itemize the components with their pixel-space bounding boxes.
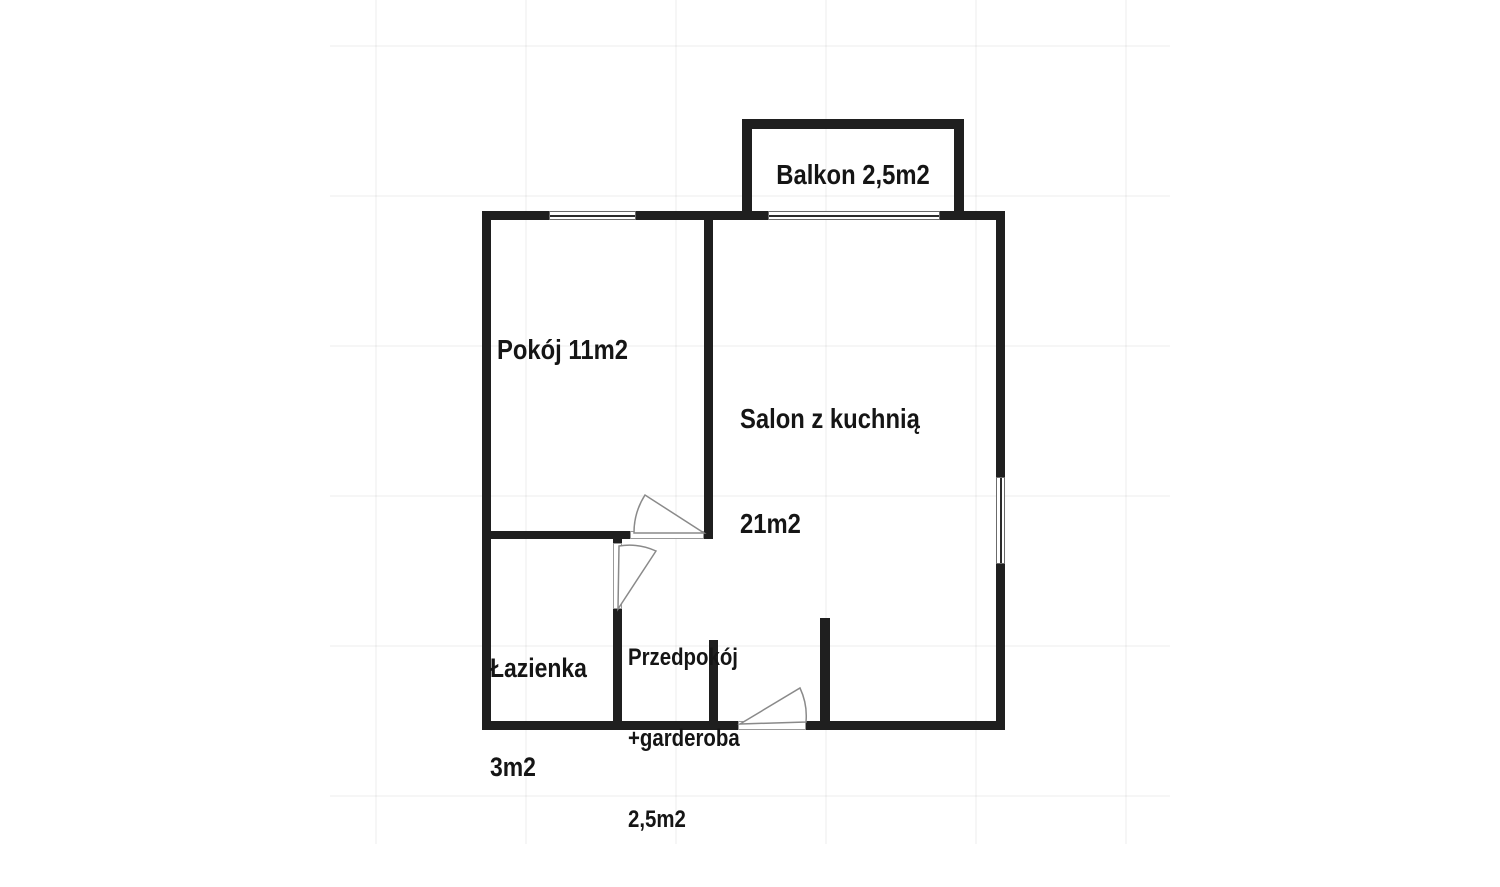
room-label-przedpokoj: Przedpokój +garderoba 2,5m2 [628,590,740,887]
room-label-lazienka-line1: Łazienka [490,652,587,685]
wall-divider-pokoj-salon [704,220,713,539]
room-label-salon-line2: 21m2 [740,506,920,541]
door-opening-entry [738,721,806,730]
room-label-balkon: Balkon 2,5m2 [759,157,948,192]
wall-outer-bottom-segment-right [806,721,1004,730]
door-opening-pokoj [630,531,704,539]
room-label-przedpokoj-line3: 2,5m2 [628,806,740,833]
window-pane-line [1000,478,1002,563]
room-label-lazienka: Łazienka 3m2 [490,586,587,850]
room-label-pokoj: Pokój 11m2 [497,332,628,367]
window-balcony-door [768,211,940,220]
room-label-przedpokoj-line1: Przedpokój [628,644,740,671]
wall-hall-right-stub [820,618,830,730]
wall-balcony-top [742,119,964,129]
wall-balcony-left [742,119,752,211]
window-pane-line [769,215,939,217]
room-label-salon: Salon z kuchnią 21m2 [740,331,920,611]
wall-outer-top-segment-left [482,211,549,220]
wall-outer-right-segment-bottom [996,564,1005,730]
window-salon-right [996,477,1005,564]
window-pane-line [550,215,635,217]
wall-outer-top-segment-middle [636,211,768,220]
wall-pokoj-bottom [482,531,630,539]
wall-outer-right-segment-top [996,211,1005,477]
door-opening-lazienka [613,543,622,609]
window-pokoj-top [549,211,636,220]
room-label-salon-line1: Salon z kuchnią [740,401,920,436]
wall-lazienka-right-bottom [613,609,622,730]
floor-plan: Balkon 2,5m2 Pokój 11m2 Salon z kuchnią … [0,0,1500,844]
wall-outer-top-segment-right [940,211,1004,220]
room-label-lazienka-line2: 3m2 [490,751,587,784]
wall-balcony-right [954,119,964,211]
door-swing-pokoj [634,495,704,533]
door-swing-entry [740,688,806,724]
room-label-przedpokoj-line2: +garderoba [628,725,740,752]
